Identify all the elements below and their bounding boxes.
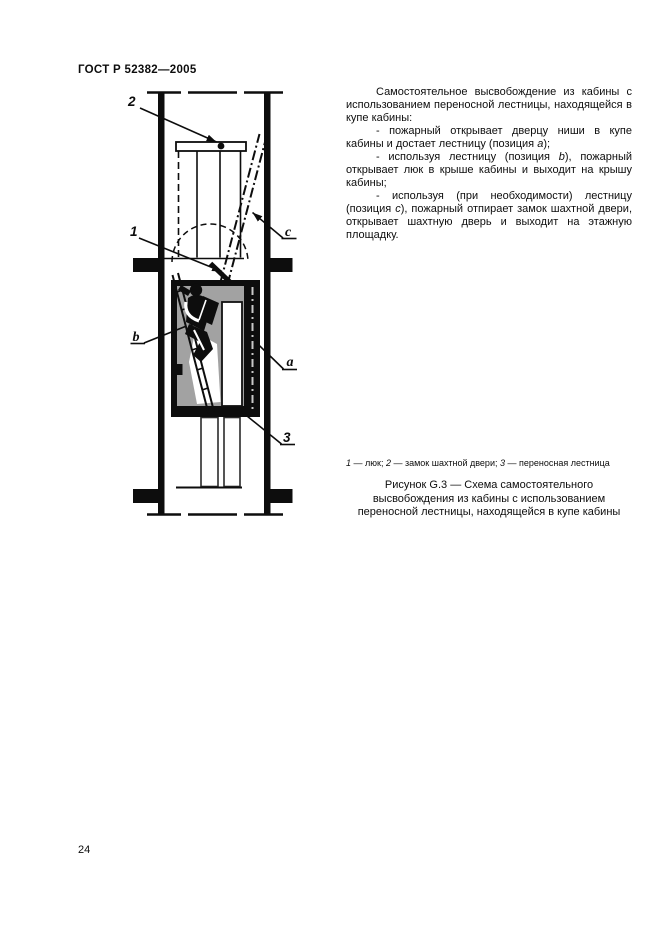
page-number: 24 [78, 844, 90, 856]
mid-slab-left [133, 258, 158, 272]
document-page: ГОСТ Р 52382—2005 [0, 0, 661, 936]
bottom-slab-right [271, 489, 293, 503]
figure-legend: 1 — люк; 2 — замок шахтной двери; 3 — пе… [346, 458, 632, 469]
ladder-position-c [221, 134, 267, 285]
mid-slab-right [271, 258, 293, 272]
elevator-shaft-diagram: 2 1 b c a 3 [95, 80, 330, 535]
lower-landing-door [176, 418, 242, 488]
figure-head [190, 284, 202, 296]
door-header-bar [176, 142, 246, 151]
shaft-wall-left [158, 92, 165, 514]
shaft-wall-right [264, 92, 271, 514]
paragraph-step-c: - используя (при необходимости) лестницу… [346, 190, 632, 242]
label-b: b [133, 330, 140, 345]
figure-caption: Рисунок G.3 — Схема самостоятельного выс… [346, 479, 632, 520]
body-text-column: Самостоятельное высвобождение из кабины … [346, 86, 632, 242]
paragraph-intro: Самостоятельное высвобождение из кабины … [346, 86, 632, 125]
bottom-slab-left [133, 489, 158, 503]
niche-handle-mark [177, 364, 183, 375]
label-3: 3 [283, 430, 291, 445]
lower-door-panel-1 [201, 418, 218, 487]
paragraph-step-a: - пожарный открывает дверцу ниши в купе … [346, 125, 632, 151]
lower-door-panel-2 [224, 418, 240, 487]
leader-2 [140, 108, 217, 142]
label-1: 1 [130, 224, 138, 239]
cabin-door-opening [222, 302, 242, 406]
label-2: 2 [127, 94, 136, 109]
standard-number-heading: ГОСТ Р 52382—2005 [78, 64, 197, 76]
paragraph-step-b: - используя лестницу (позиция b), пожарн… [346, 151, 632, 190]
shaft-door [176, 142, 246, 258]
lock-point-dot [218, 143, 225, 150]
leader-3 [242, 412, 282, 445]
label-c: c [285, 225, 292, 240]
diagram-svg: 2 1 b c a 3 [95, 80, 330, 535]
label-a: a [287, 355, 294, 370]
